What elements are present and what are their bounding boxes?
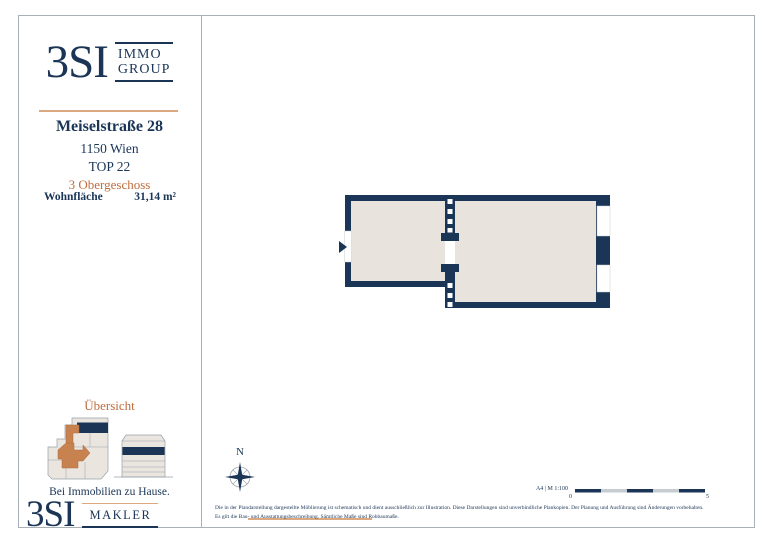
overview-miniplan bbox=[48, 418, 108, 479]
room-right-interior bbox=[455, 201, 596, 302]
scale-bar bbox=[575, 489, 705, 493]
floorplan bbox=[339, 195, 610, 308]
overview-section bbox=[114, 435, 173, 477]
doorway-opening bbox=[445, 241, 455, 264]
graphics-overlay bbox=[0, 0, 770, 545]
room-left-interior bbox=[351, 201, 445, 281]
doorway-jamb-bottom bbox=[441, 264, 459, 272]
window-bottom bbox=[597, 265, 610, 292]
window-top bbox=[597, 206, 610, 236]
compass-rose-icon bbox=[225, 462, 255, 492]
floorplan-document-page: 3SI IMMO GROUP Meiselstraße 28 1150 Wien… bbox=[0, 0, 770, 545]
doorway-jamb-top bbox=[441, 233, 459, 241]
